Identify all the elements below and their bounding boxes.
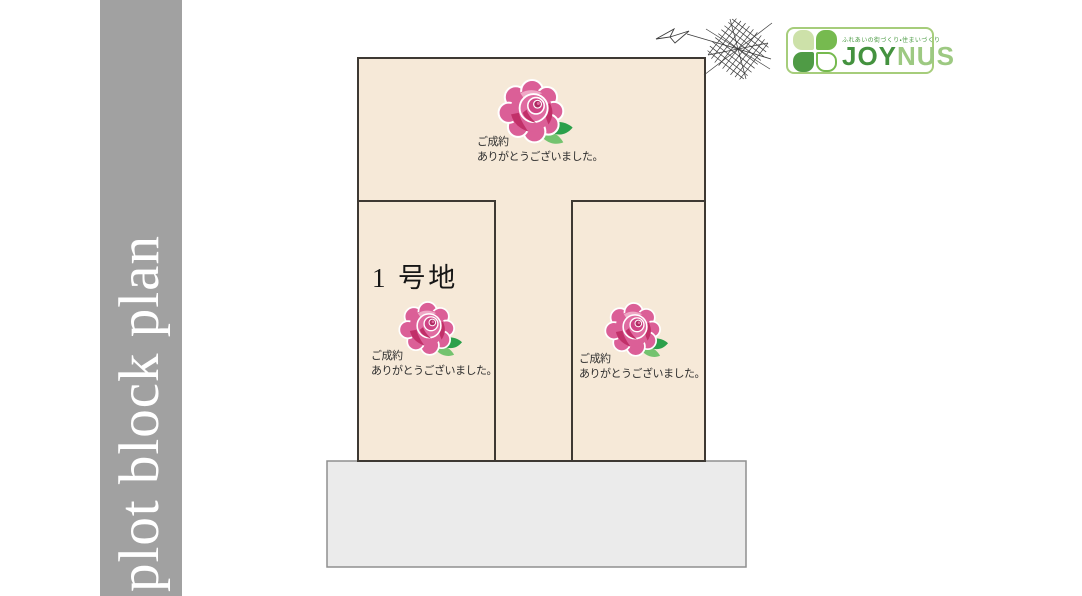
- sold-note-line1: ご成約: [477, 135, 603, 150]
- sold-note-line2: ありがとうございました。: [579, 367, 705, 382]
- clover-leaf: [816, 30, 837, 50]
- sold-note-right: ご成約 ありがとうございました。: [579, 352, 705, 382]
- clover-logo-icon: [793, 30, 837, 72]
- sold-note-line1: ご成約: [371, 349, 497, 364]
- page: plot block plan: [0, 0, 1082, 596]
- road-area: [327, 461, 746, 567]
- joynus-logo: ふれあいの街づくり・住まいづくり JOYNUS: [786, 27, 934, 74]
- logo-brand-nus: NUS: [897, 41, 955, 71]
- sold-note-line2: ありがとうございました。: [371, 364, 497, 379]
- clover-leaf: [793, 30, 814, 50]
- clover-leaf: [793, 52, 814, 72]
- logo-brand-joy: JOY: [842, 41, 897, 71]
- sold-note-plot1: ご成約 ありがとうございました。: [371, 349, 497, 379]
- clover-leaf: [816, 52, 837, 72]
- sold-note-line1: ご成約: [579, 352, 705, 367]
- plot-plan-drawing: [0, 0, 1082, 596]
- logo-text: ふれあいの街づくり・住まいづくり JOYNUS: [842, 35, 955, 67]
- plot-1-label: 1 号地: [372, 256, 458, 295]
- sold-note-line2: ありがとうございました。: [477, 150, 603, 165]
- logo-brand: JOYNUS: [842, 45, 955, 67]
- sold-note-rear: ご成約 ありがとうございました。: [477, 135, 603, 165]
- north-arrow-icon: [650, 8, 780, 83]
